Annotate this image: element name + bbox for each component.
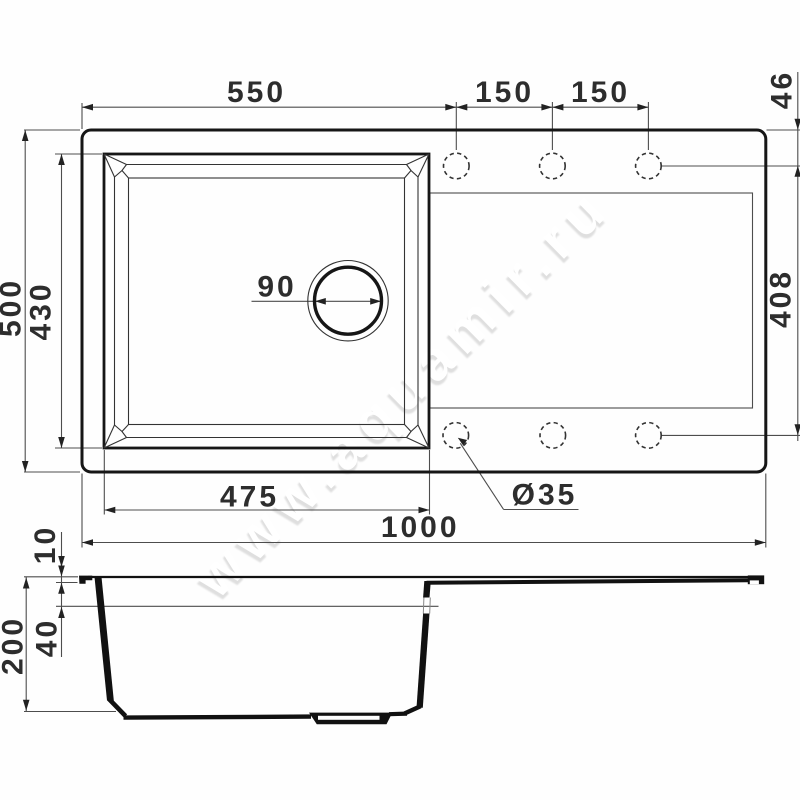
svg-text:Ø35: Ø35 [512, 479, 578, 512]
svg-text:408: 408 [765, 269, 798, 328]
svg-text:200: 200 [0, 616, 30, 675]
svg-text:150: 150 [571, 76, 630, 109]
svg-text:40: 40 [31, 618, 64, 657]
svg-text:1000: 1000 [381, 511, 460, 544]
svg-text:430: 430 [25, 281, 58, 340]
svg-text:10: 10 [29, 525, 62, 564]
svg-text:150: 150 [475, 76, 534, 109]
svg-text:475: 475 [220, 480, 279, 513]
svg-text:500: 500 [0, 278, 28, 337]
svg-text:90: 90 [257, 271, 296, 304]
svg-text:550: 550 [227, 76, 286, 109]
svg-text:46: 46 [766, 70, 799, 109]
